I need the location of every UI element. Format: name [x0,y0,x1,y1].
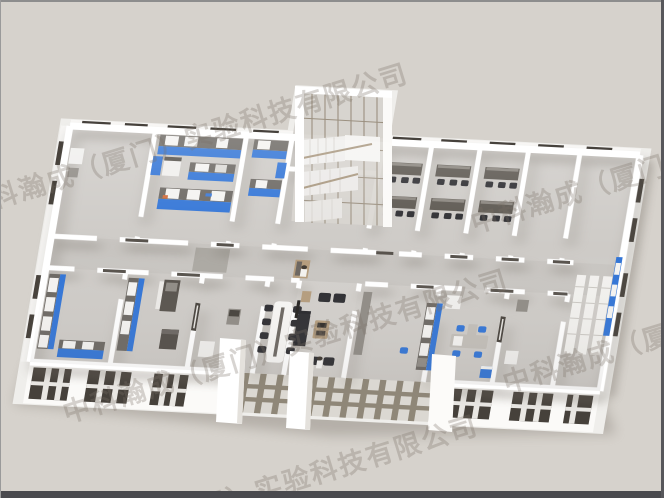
viewer-edge-top [0,0,664,2]
lab-building-3d-scene [0,0,664,498]
viewer-edge-left [0,0,1,498]
floorplan-render: 中科瀚成（厦门）实验科技有限公司 中科瀚成（厦门）实验科技有限公司 中科瀚成（厦… [0,0,664,498]
viewer-edge-bottom [0,491,664,498]
light-overlay [30,126,640,391]
